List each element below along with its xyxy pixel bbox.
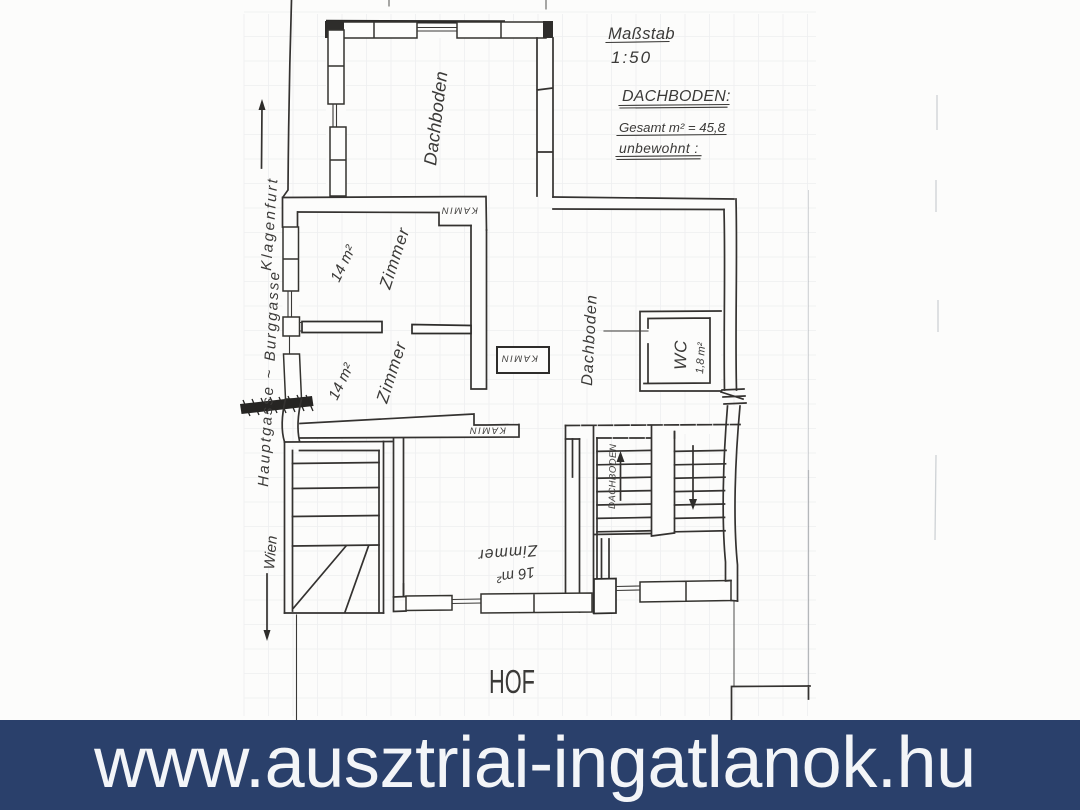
svg-text:Wien: Wien	[261, 535, 281, 570]
svg-text:DACHBODEN: DACHBODEN	[607, 444, 619, 509]
svg-text:Maßstab: Maßstab	[608, 25, 675, 43]
svg-text:unbewohnt :: unbewohnt :	[619, 141, 699, 156]
svg-text:1:50: 1:50	[611, 48, 652, 67]
svg-text:KAMIN: KAMIN	[468, 425, 506, 436]
svg-text:WC: WC	[671, 339, 691, 370]
svg-text:1,8 m²: 1,8 m²	[694, 342, 708, 374]
svg-text:KAMIN: KAMIN	[440, 205, 478, 216]
svg-text:KAMIN: KAMIN	[500, 353, 538, 364]
svg-text:HOF: HOF	[489, 663, 535, 700]
svg-text:Gesamt m² = 45,8: Gesamt m² = 45,8	[619, 120, 726, 135]
svg-text:DACHBODEN:: DACHBODEN:	[622, 88, 731, 105]
